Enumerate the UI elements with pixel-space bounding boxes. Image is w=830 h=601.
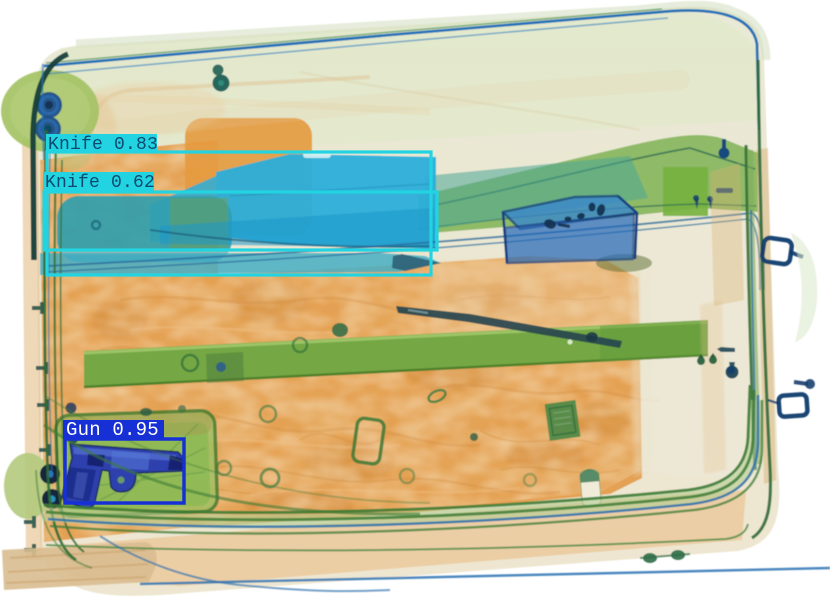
svg-text:Gun 0.95: Gun 0.95 xyxy=(66,419,159,441)
svg-text:Knife 0.62: Knife 0.62 xyxy=(45,173,155,193)
svg-text:Knife 0.83: Knife 0.83 xyxy=(48,135,158,155)
